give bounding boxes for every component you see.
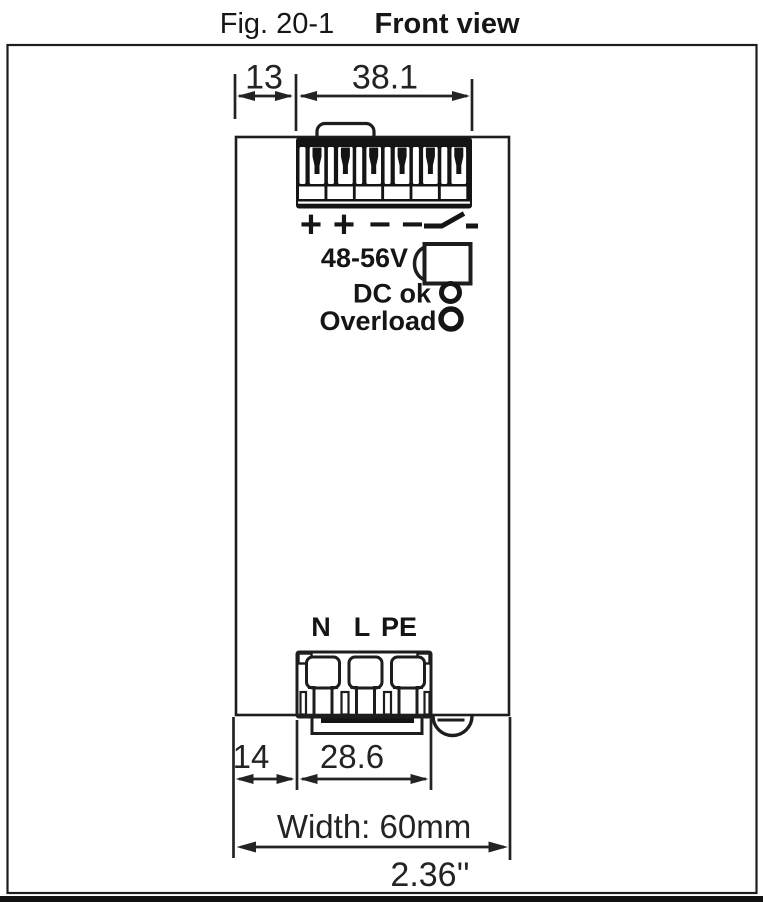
wire-entry — [441, 187, 467, 200]
dimension-arrow — [277, 774, 295, 784]
dc-ok-led-icon — [442, 284, 460, 302]
dimension-arrow — [236, 774, 254, 784]
status-indicators: DC ok Overload — [319, 279, 461, 337]
polarity-label: − — [369, 204, 391, 246]
dc-ok-label: DC ok — [353, 279, 432, 309]
input-funnel — [349, 657, 382, 688]
wire-entry — [356, 187, 382, 200]
overload-led-icon — [441, 309, 461, 329]
input-latches — [301, 692, 430, 715]
voltage-range-label: 48-56V — [321, 243, 408, 273]
input-funnels — [307, 657, 425, 715]
dimension-label-overall-width-in: 2.36'' — [390, 856, 469, 894]
dimension-arrow — [299, 91, 317, 101]
dimension-label-bottom-offset: 14 — [233, 738, 270, 775]
input-funnel-neck — [351, 688, 381, 715]
wire-entry — [327, 187, 353, 200]
dimension-label-overall-width-mm: Width: 60mm — [277, 808, 471, 845]
input-funnel-neck — [308, 688, 338, 715]
dimension-arrow — [452, 91, 470, 101]
input-terminal-label-pe: PE — [381, 612, 417, 642]
dimension-arrow — [411, 774, 429, 784]
input-funnel — [392, 657, 425, 688]
latch-slot — [301, 692, 307, 715]
dimension-output-width: 38.1 — [299, 59, 472, 132]
input-terminal-labels: N L PE — [311, 612, 417, 642]
terminal-slot — [413, 147, 419, 184]
latch-slot — [342, 692, 349, 715]
dimension-label-input-width: 28.6 — [320, 738, 384, 775]
wire-entry — [299, 187, 325, 200]
terminal-slot — [356, 147, 362, 184]
latch-slot — [425, 692, 430, 715]
dimension-top-offset: 13 — [235, 59, 296, 132]
output-polarity-row: + + − − — [300, 204, 478, 246]
dimension-arrow — [300, 774, 318, 784]
mounting-tab-bar — [321, 719, 414, 724]
figure-caption: Fig. 20-1 Front view — [220, 8, 520, 40]
dimension-label-output-width: 38.1 — [352, 59, 418, 97]
input-terminal-label-n: N — [311, 612, 331, 642]
wire-entry — [384, 187, 410, 200]
figure-title: Front view — [374, 8, 519, 40]
input-terminal-label-l: L — [354, 612, 371, 642]
voltage-adjust-section: 48-56V — [321, 243, 471, 284]
wire-entry — [412, 187, 438, 200]
input-funnel-neck — [393, 688, 423, 715]
polarity-label: + — [300, 204, 322, 246]
dimension-arrow — [237, 842, 257, 853]
polarity-label: − — [401, 204, 423, 246]
front-view-drawing: Fig. 20-1 Front view — [0, 0, 763, 902]
terminal-slot — [300, 147, 306, 184]
dimension-arrow — [489, 842, 509, 853]
terminal-slot — [441, 147, 447, 184]
figure-number: Fig. 20-1 — [220, 8, 334, 40]
dimension-input-width: 28.6 — [300, 717, 432, 790]
latch-slot — [384, 692, 391, 715]
terminal-slot — [385, 147, 391, 184]
terminal-slot — [328, 147, 334, 184]
page-bottom-edge — [0, 896, 763, 902]
overload-label: Overload — [319, 306, 436, 336]
input-terminal-block — [297, 652, 431, 734]
din-latch — [433, 716, 472, 736]
voltage-adjust-potentiometer — [425, 244, 471, 284]
input-funnel — [307, 657, 340, 688]
dimension-label-top-offset: 13 — [245, 59, 283, 97]
polarity-label: + — [333, 204, 355, 246]
relay-contact-icon — [424, 214, 478, 227]
figure-page: Fig. 20-1 Front view — [0, 0, 763, 902]
